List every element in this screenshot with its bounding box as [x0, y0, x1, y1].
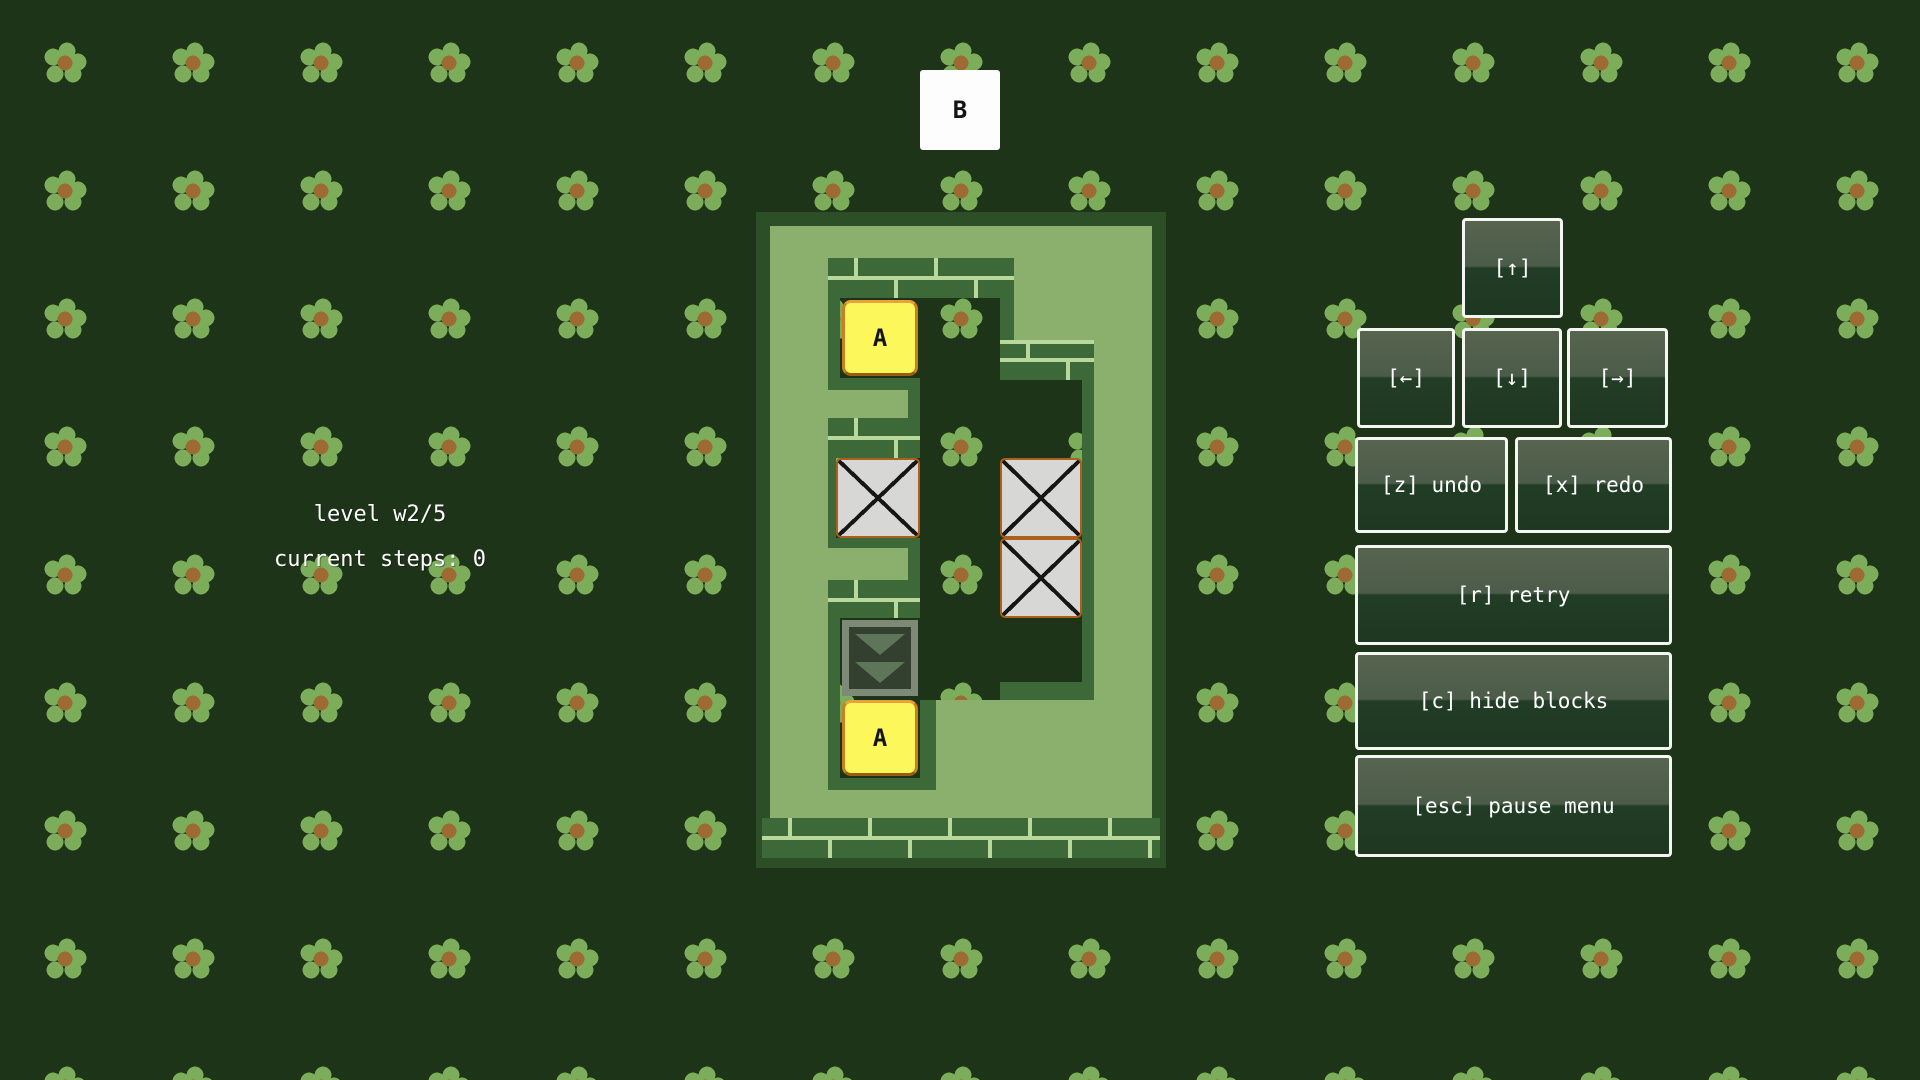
move-left-button[interactable]: [←] — [1357, 328, 1455, 428]
letter-tile-a1: A — [842, 300, 918, 376]
redo-button[interactable]: [x] redo — [1515, 437, 1672, 533]
game-board: A A — [756, 212, 1166, 868]
wall-gap-upper — [828, 390, 908, 418]
wall-strip-top-right — [1000, 298, 1014, 344]
hud: level w2/5 current steps: 0 — [230, 492, 530, 582]
wall-brick-mid-lower — [828, 580, 920, 620]
down-chevron-icon — [855, 634, 905, 655]
wall-brick-mid-upper — [828, 418, 920, 458]
wall-brick-front — [762, 818, 1160, 858]
wall-a2-bottom — [828, 778, 936, 790]
conveyor-down-tile — [842, 620, 918, 696]
down-chevron-icon — [855, 662, 905, 683]
wall-brick-right — [1000, 340, 1094, 380]
goal-tile-label: B — [953, 96, 967, 124]
path-corridor — [920, 298, 1000, 700]
wall-brick-top — [828, 258, 1014, 298]
goal-tile-b: B — [920, 70, 1000, 150]
block-x2 — [1000, 458, 1082, 538]
move-right-button[interactable]: [→] — [1567, 328, 1668, 428]
letter-tile-a2: A — [842, 700, 918, 776]
level-label: level w2/5 — [230, 492, 530, 537]
move-up-button[interactable]: [↑] — [1462, 218, 1563, 318]
letter-tile-a2-label: A — [873, 724, 887, 752]
steps-label: current steps: 0 — [230, 537, 530, 582]
wall-gap-lower — [828, 548, 908, 580]
wall-right-bottom — [1000, 682, 1094, 700]
wall-strip-right-edge — [1082, 380, 1094, 682]
undo-button[interactable]: [z] undo — [1355, 437, 1508, 533]
pause-menu-button[interactable]: [esc] pause menu — [1355, 755, 1672, 857]
move-down-button[interactable]: [↓] — [1462, 328, 1562, 428]
letter-tile-a1-label: A — [873, 324, 887, 352]
block-x3 — [1000, 538, 1082, 618]
retry-button[interactable]: [r] retry — [1355, 545, 1672, 645]
game-screen: { "hud": { "level_label": "level w2/5", … — [0, 0, 1920, 1080]
wall-strip-corridor-bottom — [920, 700, 936, 790]
block-x1 — [836, 458, 920, 538]
hide-blocks-button[interactable]: [c] hide blocks — [1355, 652, 1672, 750]
